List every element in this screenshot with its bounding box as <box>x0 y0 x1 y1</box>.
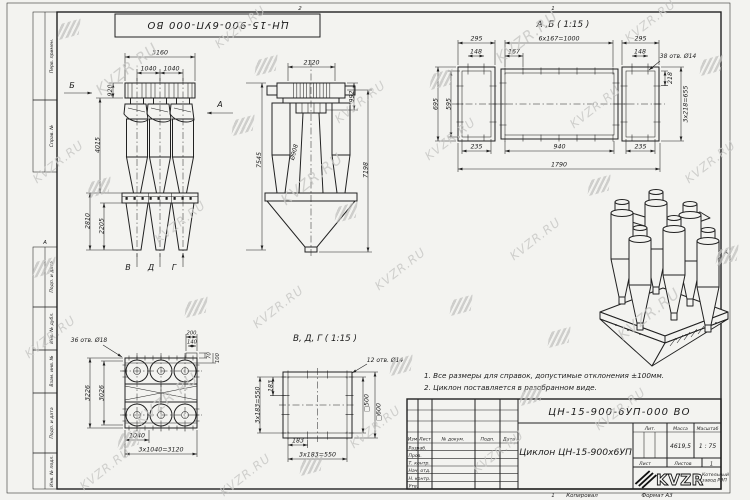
zone-marker: А <box>723 250 728 256</box>
mass-value: 4619,5 <box>670 443 691 450</box>
square-view: В, Д, Г ( 1:15 ) 12 отв. Ø14 183 3х183=5… <box>255 334 404 462</box>
row-label: Утв. <box>409 484 419 490</box>
dim-label: 1040 <box>163 66 179 73</box>
dim-label: 940 <box>553 144 565 151</box>
col-header: Подп. <box>481 437 495 443</box>
dim-label: 1040 <box>140 66 156 73</box>
note-line: 2. Циклон поставляется в разобранном вид… <box>424 383 597 392</box>
row-label: Пров. <box>409 453 422 459</box>
zone-marker: 1 <box>551 6 555 12</box>
dim-label: 295 <box>634 36 646 43</box>
holes-callout: 38 отв. Ø14 <box>660 53 697 60</box>
dim-label: 1040 <box>129 433 145 440</box>
dim-label: 100 <box>215 352 221 363</box>
row-label: Разраб. <box>409 445 427 451</box>
note-line: 1. Все размеры для справок, допустимые о… <box>424 371 664 380</box>
dim-label: 2810 <box>85 213 92 229</box>
dim-label: 3х183=550 <box>255 386 262 423</box>
scale-value: 1 : 75 <box>699 443 716 450</box>
logo-subtext: Котельный <box>702 472 729 478</box>
holes-callout: 12 отв. Ø14 <box>367 357 404 364</box>
sheets-label: Листов <box>673 461 691 467</box>
dim-label: 695 <box>433 98 440 110</box>
plan-view: 200 140 70 100 36 отв. Ø18 3226 3026 104… <box>71 331 221 458</box>
view-arrow-label: Д <box>147 263 154 272</box>
dim-label: 3х218=655 <box>683 85 690 122</box>
dim-label: 148 <box>634 49 646 56</box>
bolt-marks <box>126 197 192 200</box>
footer-format: Формат А3 <box>641 493 673 499</box>
title-block: Изм Лист № докум. Подп. Дата Разраб. Про… <box>407 399 729 490</box>
sheet-label: Лист <box>638 461 651 467</box>
dim-label: 4015 <box>95 137 102 153</box>
section-ab: А ,Б ( 1:15 ) 295 6х167=1000 295 148 167… <box>433 20 697 172</box>
iso-view <box>600 190 728 367</box>
dim-label: 3х183=550 <box>299 452 336 459</box>
dim-label: 7545 <box>256 152 263 168</box>
dim-label: 70 <box>207 352 213 359</box>
dim-label: 595 <box>446 98 453 110</box>
margin-label: Подп. и дата <box>49 407 55 438</box>
margin-label: Справ. № <box>49 125 55 148</box>
side-view: Ø908 2120 992 7198 <box>265 60 372 259</box>
dim-label: 3026 <box>99 385 106 401</box>
view-arrow-label: В <box>125 263 131 272</box>
row-label: Нач. отд. <box>409 468 431 474</box>
dim-label: 2120 <box>303 60 319 67</box>
manufacturer-logo: KVZR Котельный завод РЭП <box>634 471 729 489</box>
footer-copied: Копировал <box>566 493 598 499</box>
top-stamp: ЦН-15-900-6УП-000 ВО <box>115 14 320 37</box>
dim-label: 140 <box>187 340 198 346</box>
dim-label: □500 <box>364 394 371 412</box>
dim-label: 235 <box>470 144 482 151</box>
drawing-sheet: Перв. примен. Справ. № Подп. и дата Инв.… <box>0 0 750 500</box>
margin-label: Инв. № подл. <box>49 455 55 487</box>
col-header: Изм <box>408 437 418 443</box>
logo-subtext: завод РЭП <box>702 478 727 484</box>
row-label: Т. контр. <box>409 461 430 467</box>
dim-label: 6х167=1000 <box>538 36 579 43</box>
dim-label: 183 <box>292 438 304 445</box>
part-name: Циклон ЦН-15-900х6УП <box>519 447 632 458</box>
dim-label: □600 <box>376 403 383 421</box>
dim-label: 167 <box>508 49 520 56</box>
dim-label: 218 <box>667 72 674 84</box>
front-view: В Д Г Б А 3160 1040 1040 920 4015 2810 2… <box>64 50 266 273</box>
section-title: А ,Б ( 1:15 ) <box>536 20 590 30</box>
view-arrow-label: А <box>216 100 222 109</box>
dim-label: 183 <box>268 380 275 392</box>
dim-label: 992 <box>349 90 356 102</box>
top-stamp-text: ЦН-15-900-6УП-000 ВО <box>146 19 289 30</box>
margin-boxes: Перв. примен. Справ. № Подп. и дата Инв.… <box>33 12 57 489</box>
dim-label: 3160 <box>152 50 168 57</box>
zone-marker: 2 <box>298 6 302 12</box>
dim-label: 7198 <box>363 162 370 178</box>
dim-label: 3226 <box>85 385 92 401</box>
zone-marker: А <box>42 240 47 246</box>
dim-label: 3х1040=3120 <box>138 447 183 454</box>
col-header: № докум. <box>441 437 465 443</box>
view-arrow-label: Г <box>172 263 177 272</box>
mass-label: Масса <box>673 426 688 432</box>
col-header: Лист <box>418 437 431 443</box>
margin-label: Подп. и дата <box>49 261 55 292</box>
dim-label: 295 <box>470 36 482 43</box>
margin-label: Взам. инв. № <box>49 355 55 386</box>
dim-label: 1790 <box>551 162 567 169</box>
dim-label: 920 <box>107 84 114 96</box>
logo-text: KVZR <box>656 471 704 489</box>
col-header: Дата <box>502 437 515 443</box>
footer-num: 1 <box>551 493 554 499</box>
drawing-canvas: Перв. примен. Справ. № Подп. и дата Инв.… <box>0 0 750 500</box>
holes-callout: 36 отв. Ø18 <box>71 337 108 344</box>
sheets-value: 1 <box>710 462 713 468</box>
dim-label: 2205 <box>99 218 106 234</box>
scale-label: Масштаб <box>697 426 719 432</box>
margin-label: Перв. примен. <box>49 39 55 74</box>
dim-label: 148 <box>470 49 482 56</box>
notes: 1. Все размеры для справок, допустимые о… <box>424 371 664 392</box>
row-label: Н. контр. <box>409 476 431 482</box>
dim-label: 200 <box>187 331 198 337</box>
doc-designation: ЦН-15-900-6УП-000 ВО <box>548 407 691 418</box>
view-arrow-label: Б <box>69 81 75 90</box>
dim-label: 235 <box>634 144 646 151</box>
section-title: В, Д, Г ( 1:15 ) <box>293 334 357 344</box>
lit-label: Лит. <box>644 426 656 432</box>
margin-label: Инв. № дубл. <box>49 312 55 343</box>
